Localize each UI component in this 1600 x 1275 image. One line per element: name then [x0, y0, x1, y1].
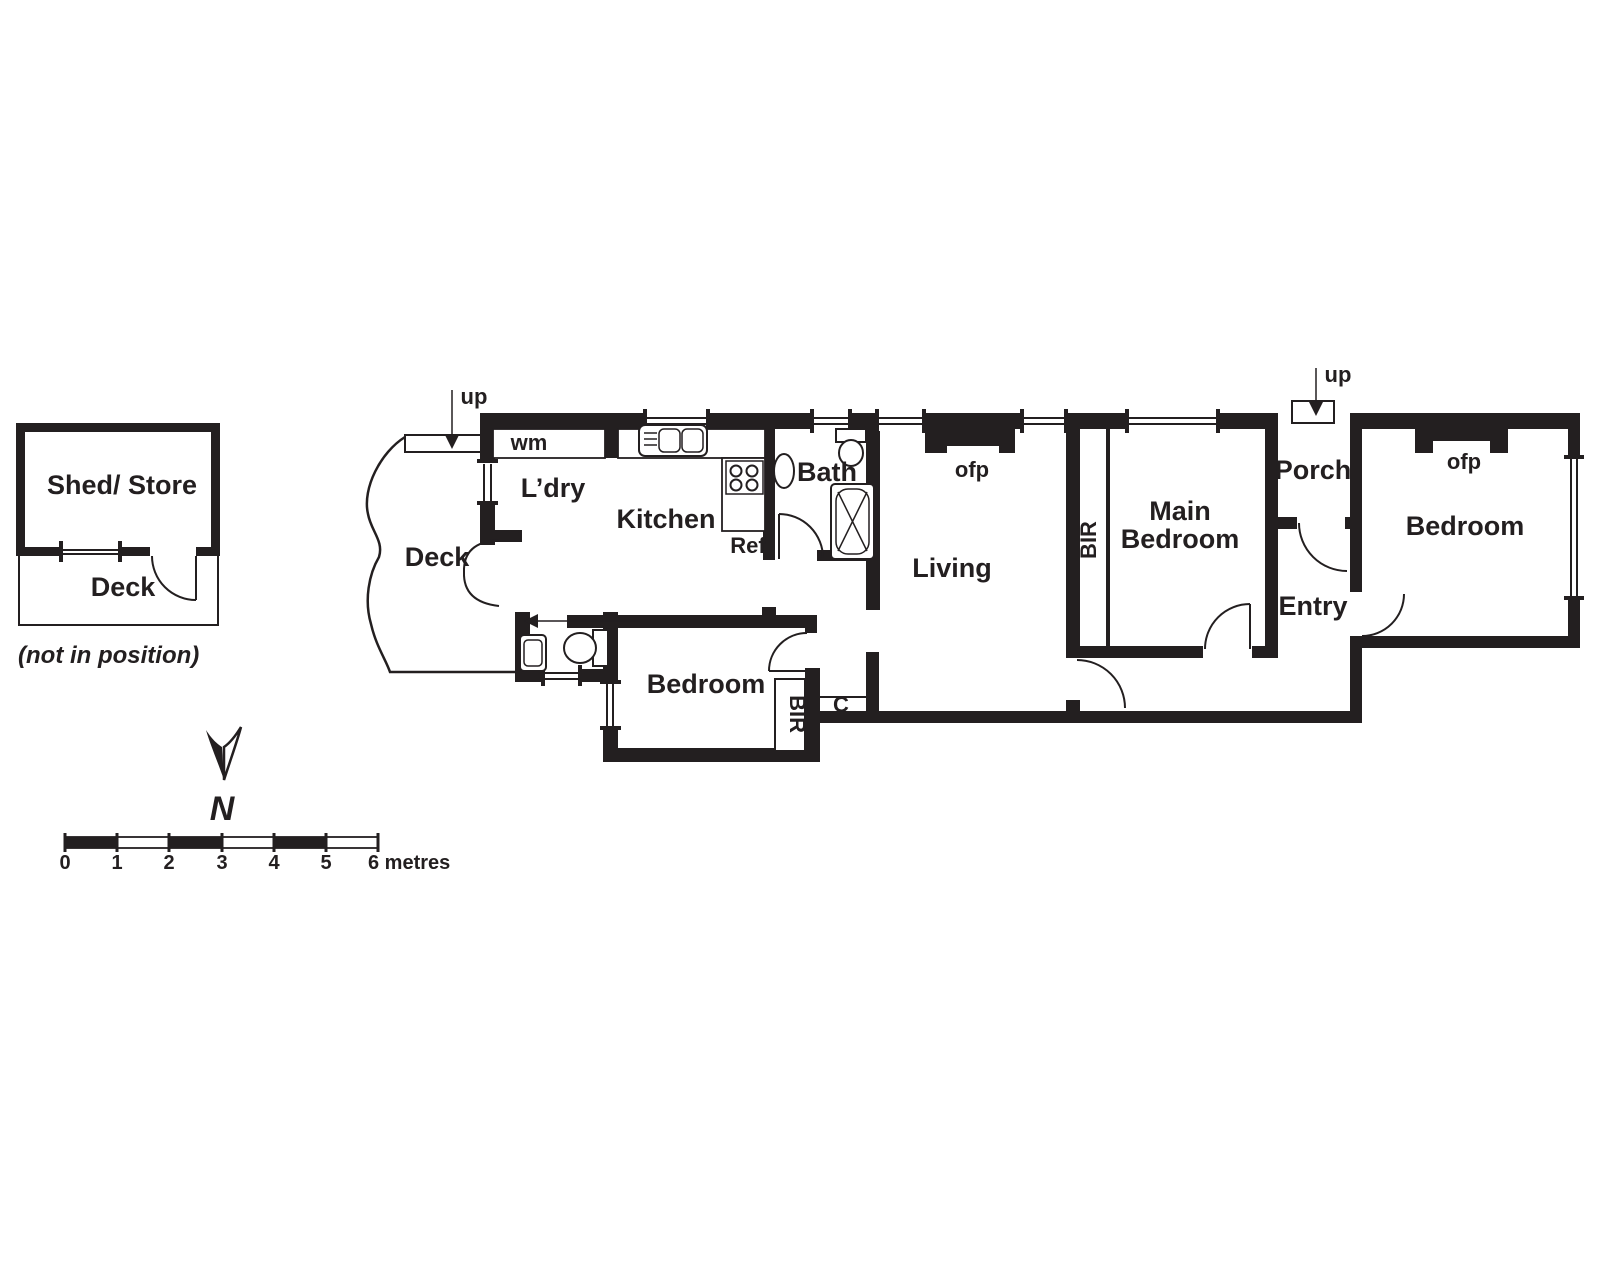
up-label-porch: up — [1325, 362, 1352, 387]
label-closet: C — [833, 692, 849, 717]
bathtub — [831, 484, 874, 559]
label-ofp-bedroom: ofp — [1447, 449, 1481, 474]
floor-plan-svg: Shed/ Store Deck (not in position) N 0 1… — [0, 0, 1600, 1275]
window-laundry — [477, 459, 498, 505]
scale-tick-0: 0 — [59, 852, 70, 874]
bath-basin — [774, 454, 794, 488]
label-ref: Ref — [730, 533, 766, 558]
living-fireplace — [925, 429, 1015, 453]
deck-step — [405, 435, 482, 452]
label-bir-main: BIR — [1076, 521, 1101, 559]
room-label-living: Living — [912, 553, 992, 583]
room-label-porch: Porch — [1275, 455, 1352, 485]
window-wc — [541, 665, 582, 686]
shed-door-opening — [150, 546, 196, 557]
scale-tick-4: 4 — [268, 852, 280, 874]
room-label-kitchen: Kitchen — [616, 504, 715, 534]
wc-basin — [520, 635, 546, 671]
label-bir-rear: BIR — [785, 695, 810, 733]
window-bedroom-rear — [600, 680, 621, 730]
scale-tick-5: 5 — [320, 852, 331, 874]
room-label-main-bedroom-line1: Main — [1149, 496, 1211, 526]
room-label-main-bedroom-line2: Bedroom — [1121, 524, 1240, 554]
room-label-bedroom-rear: Bedroom — [647, 669, 766, 699]
room-label-deck: Deck — [405, 542, 471, 572]
up-label-deck: up — [461, 384, 488, 409]
window-living-west — [875, 409, 926, 433]
scale-tick-3: 3 — [216, 852, 227, 874]
scale-tick-1: 1 — [111, 852, 122, 874]
window-living-east — [1020, 409, 1068, 433]
label-ofp-living: ofp — [955, 457, 989, 482]
room-label-entry: Entry — [1278, 591, 1347, 621]
floor-plan-page: Shed/ Store Deck (not in position) N 0 1… — [0, 0, 1600, 1275]
kitchen-sink — [639, 425, 707, 456]
window-bedroom-right — [1564, 455, 1584, 600]
label-wm: wm — [510, 430, 548, 455]
north-label: N — [210, 790, 236, 828]
room-label-bath: Bath — [797, 457, 857, 487]
window-main-bedroom — [1125, 409, 1220, 433]
room-label-shed-store: Shed/ Store — [47, 470, 197, 500]
room-label-bedroom-right: Bedroom — [1406, 511, 1525, 541]
room-label-laundry: L’dry — [521, 473, 586, 503]
wc-toilet — [564, 630, 608, 666]
room-label-shed-deck: Deck — [91, 572, 157, 602]
scale-end-label: 6 metres — [368, 852, 450, 874]
scale-tick-2: 2 — [163, 852, 174, 874]
not-in-position-note: (not in position) — [18, 642, 199, 669]
